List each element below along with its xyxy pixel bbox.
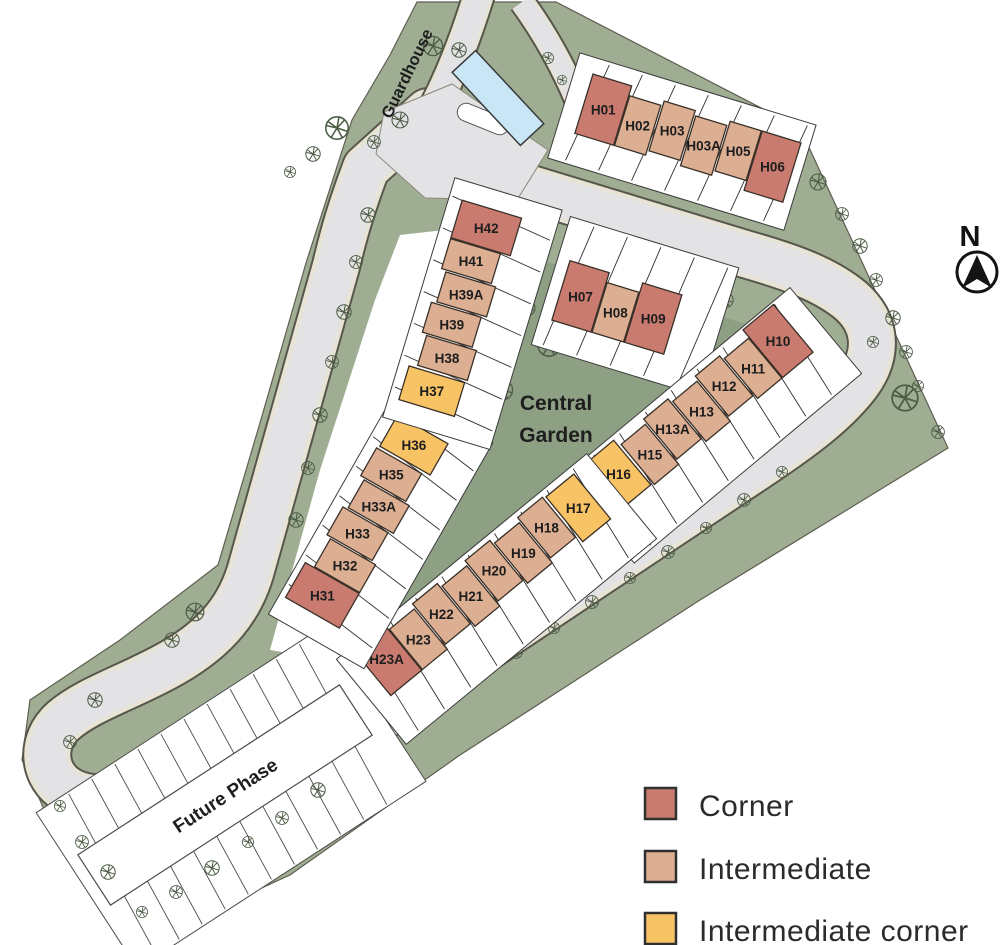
legend-label-intermediate: Intermediate <box>699 853 872 886</box>
legend-item-intermediate-corner: Intermediate corner <box>645 913 969 945</box>
north-label: N <box>960 221 981 253</box>
house-label-H20: H20 <box>482 564 507 579</box>
house-label-H18: H18 <box>534 520 559 535</box>
legend-swatch-corner <box>645 788 676 819</box>
house-label-H13: H13 <box>689 404 714 419</box>
legend-swatch-intermediate <box>645 851 676 882</box>
house-label-H05: H05 <box>726 144 751 159</box>
house-label-H17: H17 <box>566 501 591 516</box>
house-label-H23: H23 <box>406 632 431 647</box>
central-garden-label-line2: Garden <box>519 424 593 447</box>
tree-icon <box>870 274 883 287</box>
legend: Corner Intermediate Intermediate corner <box>645 788 969 945</box>
house-label-H31: H31 <box>310 588 335 603</box>
tree-icon <box>284 166 295 177</box>
house-label-H19: H19 <box>511 546 536 561</box>
house-label-H08: H08 <box>603 305 628 320</box>
house-label-H21: H21 <box>458 589 483 604</box>
house-label-H01: H01 <box>591 103 616 118</box>
house-label-H09: H09 <box>641 312 666 327</box>
tree-icon <box>326 117 348 139</box>
house-label-H35: H35 <box>379 468 404 483</box>
house-label-H39A: H39A <box>449 287 484 302</box>
house-label-H36: H36 <box>402 438 427 453</box>
house-label-H22: H22 <box>429 607 454 622</box>
house-label-H32: H32 <box>333 559 358 574</box>
house-label-H16: H16 <box>606 467 631 482</box>
house-label-H12: H12 <box>712 379 737 394</box>
house-label-H23A: H23A <box>369 652 404 667</box>
legend-label-corner: Corner <box>699 790 794 823</box>
legend-item-corner: Corner <box>645 788 794 823</box>
legend-item-intermediate: Intermediate <box>645 851 872 886</box>
house-label-H13A: H13A <box>655 422 690 437</box>
legend-label-intermediate-corner: Intermediate corner <box>699 915 969 945</box>
tree-icon <box>306 147 320 161</box>
house-label-H02: H02 <box>625 118 650 133</box>
house-label-H06: H06 <box>760 160 785 175</box>
legend-swatch-intermediate-corner <box>645 913 676 944</box>
central-garden-label-line1: Central <box>520 392 592 415</box>
house-label-H03: H03 <box>660 124 685 139</box>
house-label-H42: H42 <box>474 221 499 236</box>
house-label-H33A: H33A <box>361 500 396 515</box>
house-label-H38: H38 <box>435 351 460 366</box>
house-label-H15: H15 <box>637 447 662 462</box>
house-label-H03A: H03A <box>686 139 721 154</box>
house-label-H39: H39 <box>439 318 464 333</box>
site-plan: Future Phase H01H02H03H03AH05H06H07H08H0… <box>0 0 1000 945</box>
house-label-H41: H41 <box>459 254 484 269</box>
house-label-H10: H10 <box>766 334 791 349</box>
house-label-H07: H07 <box>568 289 593 304</box>
house-label-H37: H37 <box>419 384 444 399</box>
north-arrow: N <box>957 221 997 292</box>
house-label-H11: H11 <box>741 361 766 376</box>
house-label-H33: H33 <box>345 527 370 542</box>
